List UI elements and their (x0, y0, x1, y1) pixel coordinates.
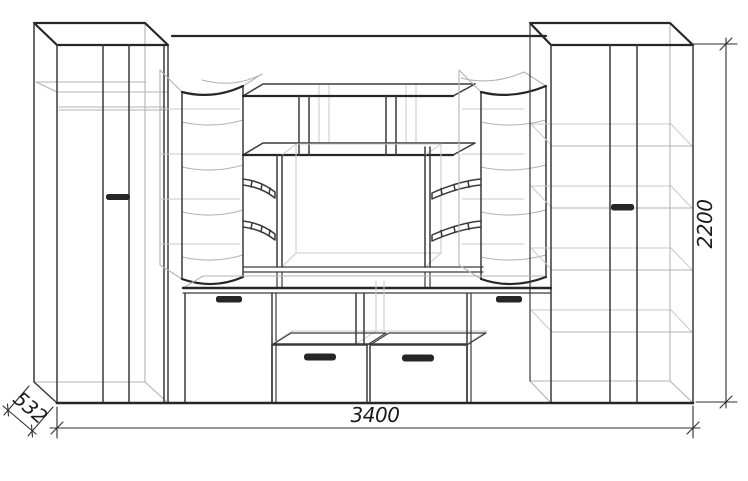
left-column-shelf-backs (161, 109, 240, 244)
niche-bottom-shelf (243, 267, 483, 288)
drawer-right-front (370, 345, 467, 403)
right-wardrobe-frame (551, 45, 693, 403)
furniture-technical-drawing: 3400 2200 532 (0, 0, 748, 481)
base-cabinets (57, 276, 693, 403)
right-wardrobe-top-face (530, 23, 693, 45)
corner-shelf-left-upper (243, 179, 275, 198)
right-wardrobe (530, 23, 693, 403)
right-column-bow-front (481, 86, 546, 284)
corner-shelf-left-lower (243, 221, 275, 240)
drawer-left-top-face (272, 333, 386, 345)
base-right-door-handle (496, 296, 522, 303)
right-wardrobe-shelf-fronts (552, 146, 692, 332)
bridge-dividers (299, 96, 396, 155)
right-shelf-column (459, 70, 546, 284)
tv-niche (243, 144, 483, 288)
depth-dimension: 532 (3, 386, 53, 437)
left-wardrobe-handle (106, 194, 130, 200)
base-left-door-handle (216, 296, 242, 303)
open-shelf-divider (356, 293, 364, 344)
drawer-left-handle (304, 354, 336, 361)
drawer-right-handle (402, 355, 434, 362)
right-wardrobe-back-lines (530, 23, 693, 403)
bridge-shelf-fronts (243, 96, 453, 155)
left-column-depth-lines (160, 70, 262, 279)
left-shelf-column (160, 70, 262, 284)
base-left-door (185, 293, 272, 403)
left-wardrobe (34, 23, 168, 403)
height-dimension: 2200 (690, 38, 737, 408)
left-wardrobe-door-lines (103, 45, 164, 403)
right-wardrobe-handle (611, 204, 634, 211)
corner-shelves-right (432, 179, 481, 241)
left-column-bow-front (182, 86, 243, 284)
bridge-divider-backs (319, 84, 416, 143)
left-wardrobe-interior-lines (34, 23, 168, 403)
wall-unit-wireframe: 3400 2200 532 (0, 0, 748, 481)
width-dimension-label: 3400 (351, 403, 400, 427)
left-column-shelves (182, 120, 243, 260)
width-dimension: 3400 (50, 403, 700, 438)
right-wardrobe-door-lines (610, 45, 637, 403)
left-column-sides (182, 86, 243, 279)
open-shelf-depth-lines (272, 281, 487, 344)
niche-back-panel (282, 144, 441, 267)
corner-shelves-left (243, 179, 275, 240)
corner-shelf-right-lower (432, 221, 481, 241)
right-column-shelves (481, 120, 546, 260)
right-column-shelf-backs (462, 109, 524, 244)
right-column-sides (481, 86, 546, 279)
height-dimension-label: 2200 (693, 200, 717, 249)
left-wardrobe-top-face (34, 23, 168, 45)
left-wardrobe-frame (34, 23, 168, 403)
corner-shelf-right-upper (432, 179, 481, 199)
right-wardrobe-shelf-backs (531, 124, 692, 332)
niche-side-walls (277, 147, 430, 267)
